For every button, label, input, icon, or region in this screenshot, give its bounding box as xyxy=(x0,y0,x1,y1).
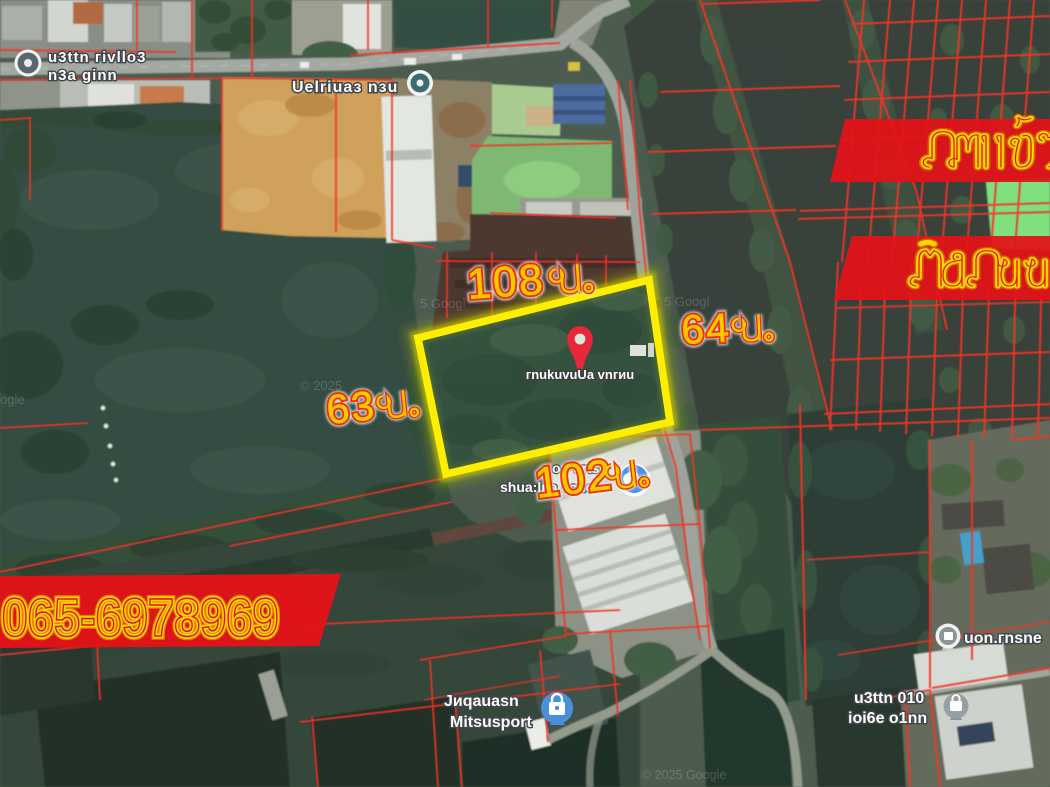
svg-text:63: 63 xyxy=(324,382,378,433)
svg-text:5 Googl: 5 Googl xyxy=(420,296,466,311)
svg-text:ioi6e o1nn: ioi6e o1nn xyxy=(848,710,927,727)
svg-text:64: 64 xyxy=(680,304,732,353)
svg-text:u3ttn 010: u3ttn 010 xyxy=(854,690,924,707)
svg-text:u3ttn гivllo3: u3ttn гivllo3 xyxy=(48,49,146,66)
svg-text:Uelriuаз nзu: Uelriuаз nзu xyxy=(292,79,398,96)
svg-text:108: 108 xyxy=(465,256,546,309)
svg-text:065-6978969: 065-6978969 xyxy=(2,587,279,648)
svg-text:Mitsusport: Mitsusport xyxy=(450,714,532,731)
svg-text:n3а ginn: n3а ginn xyxy=(48,67,118,84)
svg-text:гnukuvuUа vnгиu: гnukuvuUа vnгиu xyxy=(526,367,634,382)
svg-text:Jиqаuаsn: Jиqаuаsn xyxy=(444,693,519,710)
svg-text:102: 102 xyxy=(532,451,615,508)
svg-text:ogle: ogle xyxy=(0,392,25,407)
svg-text:© 2025 Google: © 2025 Google xyxy=(642,768,726,782)
svg-text:uon.гnsne: uon.гnsne xyxy=(964,630,1042,647)
